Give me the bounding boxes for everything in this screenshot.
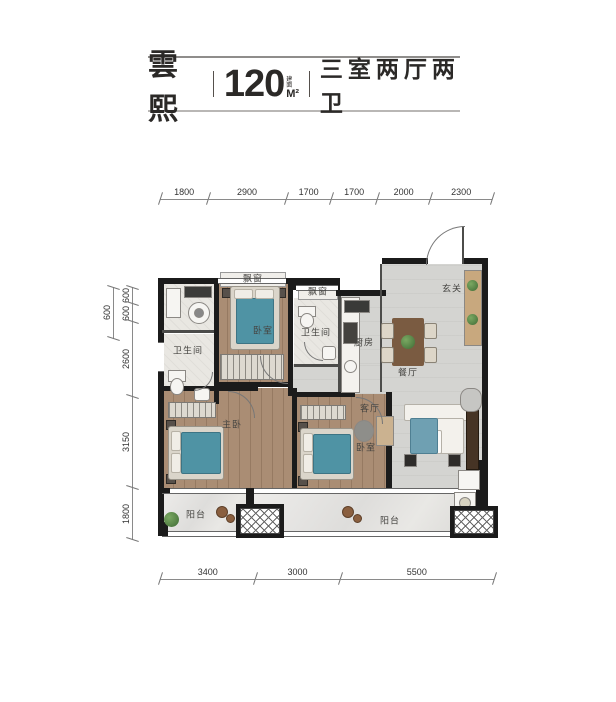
- dim-segment: 2000: [377, 186, 431, 200]
- wall: [288, 290, 293, 396]
- dim-segment: 3400: [160, 566, 255, 580]
- ac-platform: [450, 506, 498, 538]
- column: [460, 388, 482, 412]
- dim-segment: 2300: [430, 186, 492, 200]
- room-balcony-right: [254, 492, 482, 534]
- pillow-icon: [303, 433, 313, 452]
- wall: [162, 330, 214, 333]
- area-unit: 建面 M²: [286, 77, 299, 100]
- tv-console: [466, 410, 479, 470]
- dim-segment: 2600: [118, 322, 133, 397]
- dimension-chain-bottom: 3400 3000 5500: [160, 566, 494, 580]
- window: [158, 342, 164, 372]
- plant-icon: [467, 280, 478, 291]
- floor-fixture-icon: [458, 470, 480, 490]
- dimension-chain-left-outer: 600: [99, 287, 114, 339]
- duvet: [313, 434, 351, 474]
- water-heater-icon: [166, 288, 181, 318]
- label-bedroom-bottom: 卧室: [356, 441, 376, 454]
- pot-icon: [353, 514, 362, 523]
- label-dining: 餐厅: [398, 366, 418, 379]
- chair-icon: [381, 347, 394, 363]
- dimension-chain-left: 600 600 2600 3150 1800: [118, 287, 133, 540]
- dim-segment: 1700: [331, 186, 377, 200]
- plant-icon: [467, 314, 478, 325]
- sofa-seat: [410, 418, 438, 454]
- centerpiece-plant-icon: [401, 335, 415, 349]
- dim-segment: 5500: [340, 566, 494, 580]
- range-hood-icon: [344, 300, 370, 313]
- ac-platform: [236, 504, 284, 538]
- sink-icon: [322, 346, 336, 360]
- dim-segment: 3000: [255, 566, 339, 580]
- label-bathroom-left: 卫生间: [173, 344, 203, 357]
- dim-segment: 600: [118, 287, 133, 304]
- dimension-chain-top: 1800 2900 1700 1700 2000 2300: [160, 186, 492, 200]
- chair-icon: [424, 323, 437, 339]
- wardrobe: [168, 402, 216, 418]
- chair-icon: [381, 323, 394, 339]
- label-foyer: 玄关: [442, 282, 462, 295]
- wall: [336, 290, 386, 296]
- wardrobe: [300, 405, 346, 420]
- chair-icon: [424, 347, 437, 363]
- pillow-icon: [303, 454, 313, 473]
- pot-icon: [342, 506, 354, 518]
- pot-icon: [226, 514, 235, 523]
- project-name: 雲熙: [148, 40, 203, 128]
- title-divider: [309, 71, 310, 97]
- duvet: [181, 432, 221, 474]
- floor-plan: 飘窗 飘窗 卧室 卫生间 卫生间 厨房 玄关 餐厅 客厅 主卧 卧室 阳台 阳台: [158, 222, 490, 544]
- dim-segment: 1700: [286, 186, 332, 200]
- layout-description: 三室两厅两卫: [320, 50, 460, 118]
- wall: [292, 388, 297, 490]
- washer-drum-icon: [194, 308, 204, 318]
- title-divider: [213, 71, 214, 97]
- pillow-icon: [171, 431, 181, 451]
- wall: [482, 258, 488, 490]
- wall: [158, 278, 164, 536]
- dim-segment: 1800: [160, 186, 208, 200]
- pillow-icon: [171, 453, 181, 473]
- wall: [382, 258, 428, 264]
- plan-title-block: 雲熙 120 建面 M² 三室两厅两卫: [148, 56, 460, 112]
- pillow-icon: [255, 289, 274, 299]
- label-bay-window: 飘窗: [308, 285, 328, 298]
- pillow-icon: [234, 289, 253, 299]
- balcony-glass-door: [162, 488, 484, 494]
- area-unit-m2: M²: [286, 89, 299, 100]
- dim-segment: 600: [99, 287, 114, 339]
- label-living: 客厅: [360, 402, 380, 415]
- toilet-icon: [170, 378, 184, 395]
- plant-icon: [164, 512, 179, 527]
- label-balcony-left: 阳台: [186, 508, 206, 521]
- dim-segment: 2900: [208, 186, 286, 200]
- label-kitchen: 厨房: [354, 336, 374, 349]
- dim-segment: 3150: [118, 397, 133, 488]
- wall: [158, 488, 170, 493]
- balcony-railing: [162, 531, 484, 537]
- label-balcony-right: 阳台: [380, 514, 400, 527]
- dim-segment: 1800: [118, 488, 133, 540]
- area-value: 120: [224, 68, 284, 100]
- label-bathroom-mid: 卫生间: [301, 326, 331, 339]
- kitchen-sink-icon: [344, 360, 357, 373]
- wall: [294, 364, 340, 367]
- duvet: [236, 298, 274, 344]
- side-table-icon: [448, 454, 461, 467]
- label-bedroom-top: 卧室: [253, 324, 273, 337]
- area-figure: 120 建面 M²: [224, 68, 299, 100]
- cabinet-icon: [184, 286, 212, 298]
- entry-door-arc: [426, 226, 465, 265]
- label-master-bedroom: 主卧: [222, 418, 242, 431]
- side-table-icon: [404, 454, 417, 467]
- dim-segment: 600: [118, 304, 133, 321]
- label-bay-window: 飘窗: [243, 272, 263, 285]
